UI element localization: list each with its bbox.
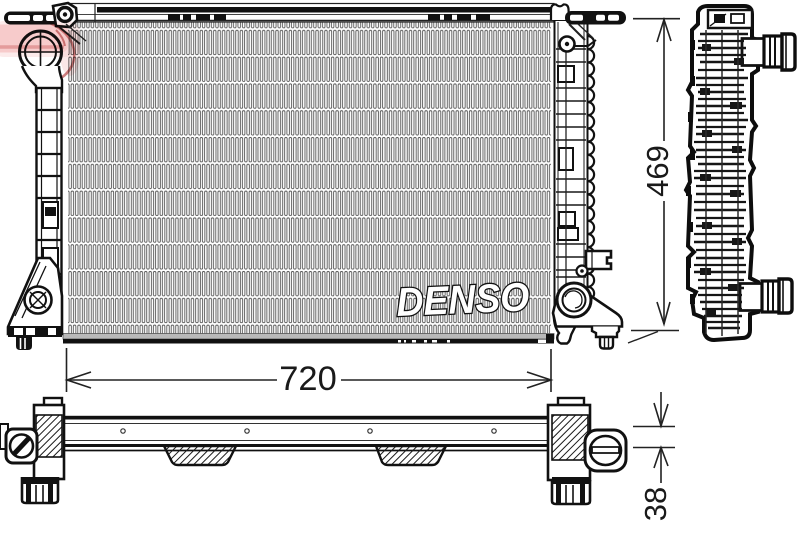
svg-text:38: 38 — [638, 487, 673, 521]
svg-text:720: 720 — [279, 360, 337, 398]
svg-text:469: 469 — [640, 145, 675, 197]
svg-text:DENSO: DENSO — [395, 275, 530, 325]
